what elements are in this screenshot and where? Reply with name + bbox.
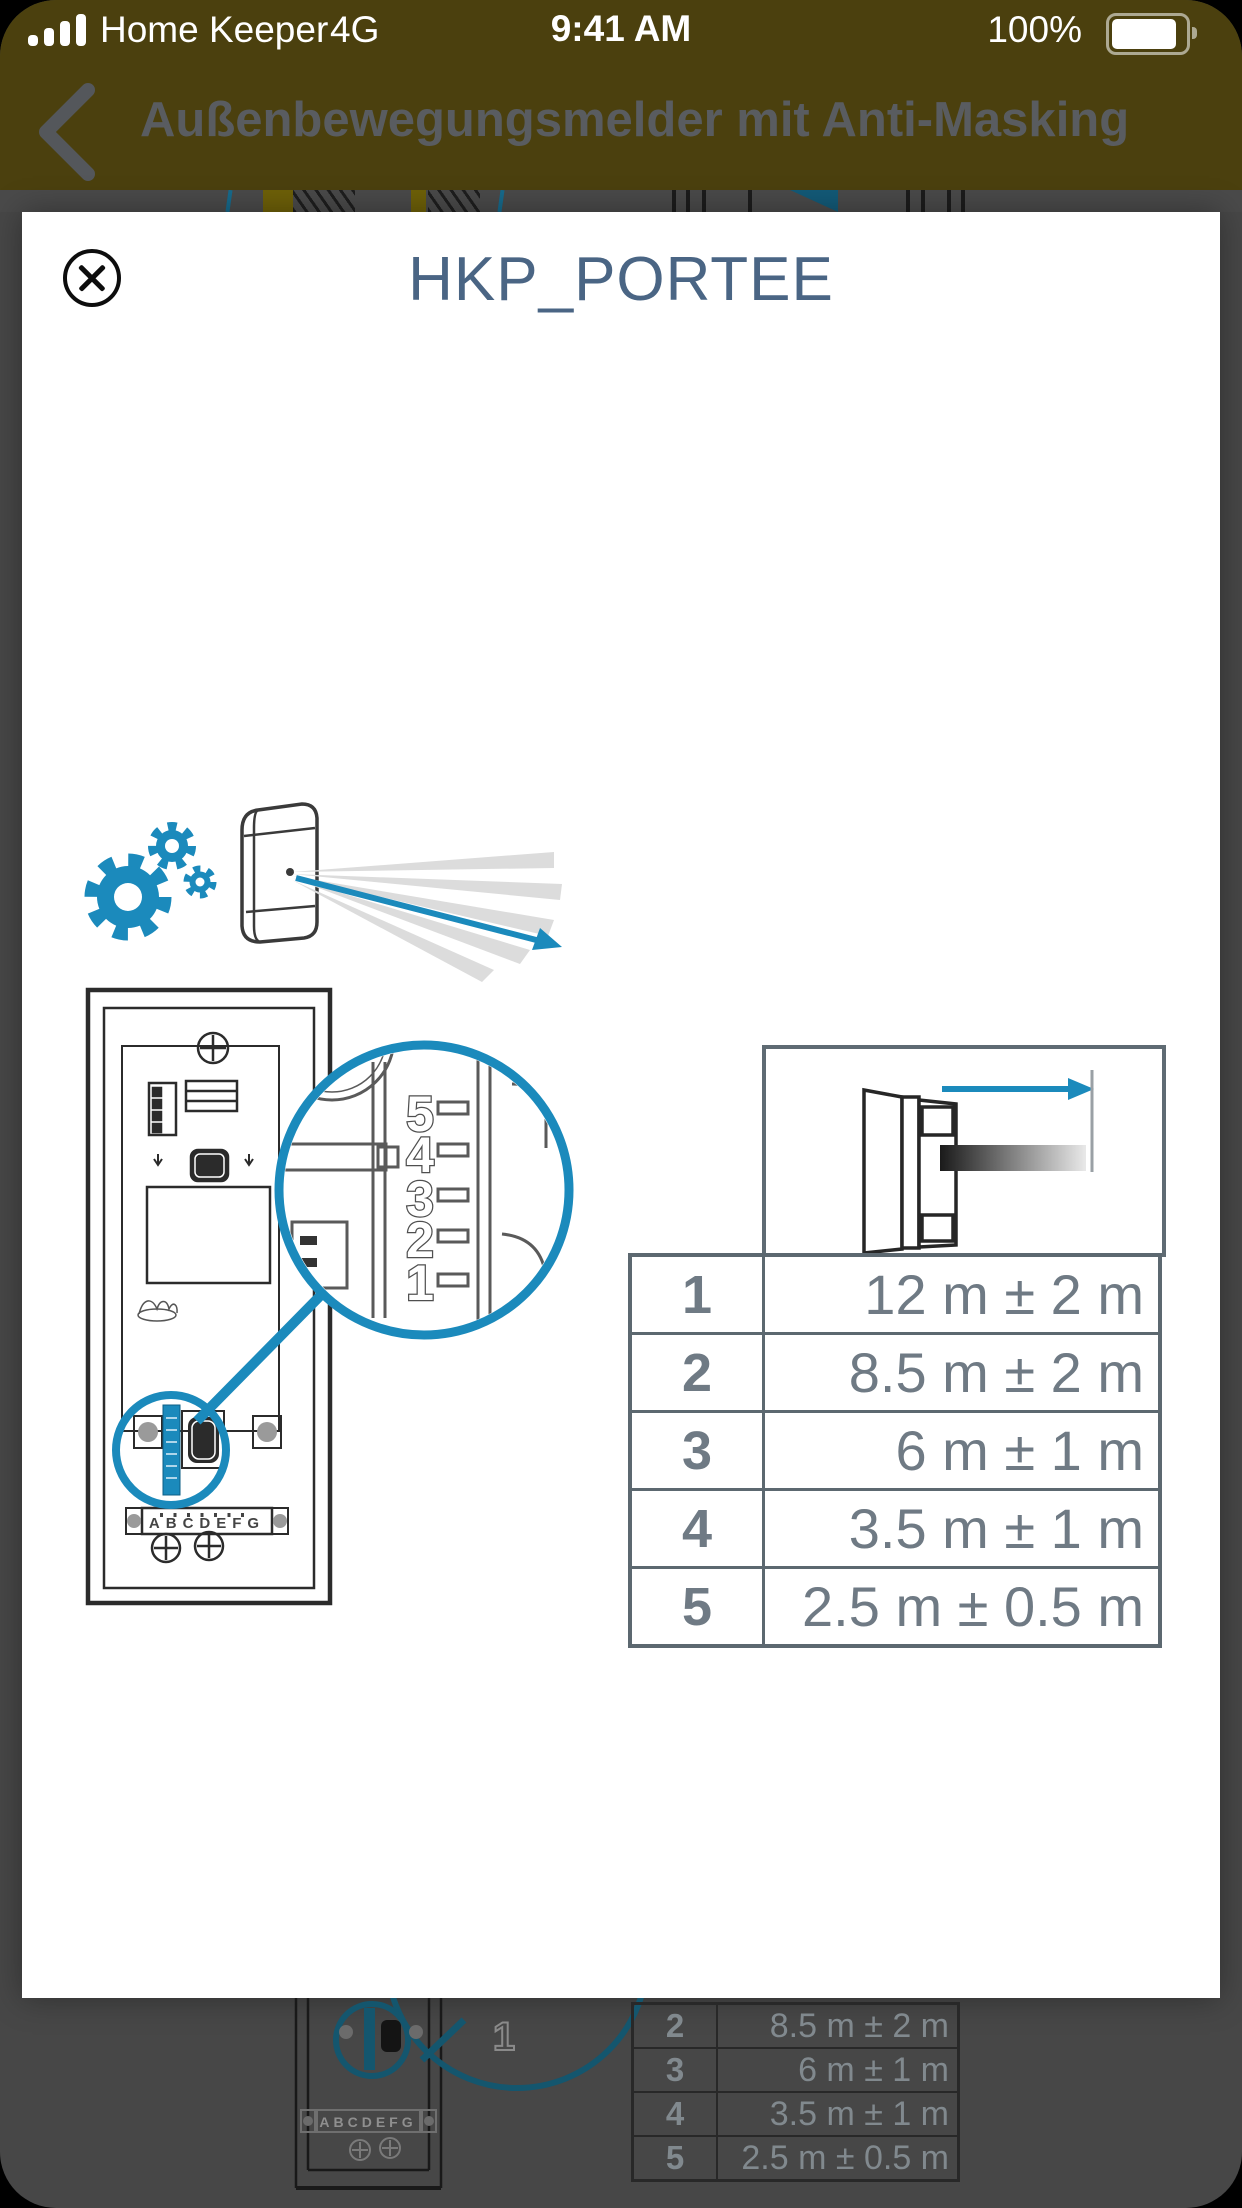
table-row: 4 3.5 m ± 1 m — [634, 2091, 957, 2135]
image-viewer-modal: HKP_PORTEE — [22, 212, 1220, 1998]
table-row: 2 8.5 m ± 2 m — [634, 2005, 957, 2047]
screw-icon — [152, 1534, 180, 1562]
background-fragment — [686, 190, 690, 212]
level-cell: 4 — [634, 2093, 718, 2135]
level-cell: 2 — [634, 2005, 718, 2047]
background-fragment — [921, 190, 925, 212]
background-fragment — [748, 190, 752, 212]
callout-digit: 1 — [406, 1255, 434, 1311]
level-cell: 2 — [632, 1335, 765, 1410]
level-cell: 1 — [632, 1257, 765, 1332]
background-fragment — [961, 190, 965, 212]
screw-icon — [195, 1532, 223, 1560]
background-fragment — [225, 190, 232, 212]
chevron-left-icon[interactable] — [30, 82, 110, 182]
background-fragment — [293, 190, 355, 212]
level-cell: 5 — [634, 2137, 718, 2179]
dimmed-device-diagram-fragment: 1 ABCDEFG — [290, 1998, 660, 2208]
range-cell: 2.5 m ± 0.5 m — [765, 1569, 1158, 1644]
range-cell: 12 m ± 2 m — [765, 1257, 1158, 1332]
range-cell: 3.5 m ± 1 m — [718, 2093, 957, 2135]
level-cell: 3 — [632, 1413, 765, 1488]
gears-icon — [92, 827, 213, 933]
range-cell: 3.5 m ± 1 m — [765, 1491, 1158, 1566]
table-row: 2 8.5 m ± 2 m — [632, 1332, 1158, 1410]
background-fragment — [672, 190, 676, 212]
status-bar: Home Keeper 4G 9:41 AM 100% — [0, 0, 1242, 60]
range-side-view-diagram — [762, 1045, 1166, 1257]
modal-title: HKP_PORTEE — [22, 238, 1220, 322]
background-fragment — [497, 190, 504, 212]
level-cell: 4 — [632, 1491, 765, 1566]
dimmed-magnifier-arc — [387, 1998, 647, 2088]
battery-icon — [1106, 13, 1190, 55]
background-fragment — [702, 190, 706, 212]
range-cell: 6 m ± 1 m — [718, 2049, 957, 2091]
app-header: Home Keeper 4G 9:41 AM 100% Außenbewegun… — [0, 0, 1242, 190]
dimmed-dip-slider — [336, 2004, 423, 2076]
page-title: Außenbewegungsmelder mit Anti-Masking — [140, 92, 1212, 148]
table-row: 3 6 m ± 1 m — [634, 2047, 957, 2091]
dimmed-terminal-labels: ABCDEFG — [319, 2114, 416, 2130]
detector-side-view-icon — [864, 1090, 956, 1253]
dip-slider-icon — [163, 1405, 219, 1495]
background-fragment — [263, 190, 293, 212]
table-row: 5 2.5 m ± 0.5 m — [634, 2135, 957, 2179]
device-internals-diagram: ABCDEFG — [82, 984, 602, 1629]
table-row: 5 2.5 m ± 0.5 m — [632, 1566, 1158, 1644]
settings-gears-and-beams-icon — [62, 800, 592, 990]
background-fragment — [790, 190, 838, 212]
detection-beams-icon — [292, 852, 562, 982]
nav-bar: Außenbewegungsmelder mit Anti-Masking — [0, 60, 1242, 190]
connector-block — [149, 1083, 176, 1135]
callout-link-line — [197, 1291, 325, 1421]
screw-icon — [198, 1033, 228, 1063]
table-row: 3 6 m ± 1 m — [632, 1410, 1158, 1488]
dimmed-background-strip — [0, 190, 1242, 212]
background-fragment — [428, 190, 480, 212]
dimmed-range-table: 2 8.5 m ± 2 m 3 6 m ± 1 m 4 3.5 m ± 1 m … — [631, 2002, 960, 2182]
range-cell: 8.5 m ± 2 m — [718, 2005, 957, 2047]
dimmed-screws — [350, 2138, 400, 2160]
background-fragment — [906, 190, 910, 212]
detection-range-gradient-bar — [940, 1145, 1086, 1171]
level-cell: 5 — [632, 1569, 765, 1644]
range-cell: 6 m ± 1 m — [765, 1413, 1158, 1488]
range-table: 1 12 m ± 2 m 2 8.5 m ± 2 m 3 6 m ± 1 m 4… — [628, 1253, 1162, 1648]
background-fragment — [947, 190, 951, 212]
range-cell: 2.5 m ± 0.5 m — [718, 2137, 957, 2179]
table-row: 1 12 m ± 2 m — [632, 1257, 1158, 1332]
level-cell: 3 — [634, 2049, 718, 2091]
dimmed-callout-digit: 1 — [493, 2015, 515, 2059]
background-fragment — [411, 190, 426, 212]
range-cell: 8.5 m ± 2 m — [765, 1335, 1158, 1410]
battery-percent-label: 100% — [987, 9, 1082, 51]
table-row: 4 3.5 m ± 1 m — [632, 1488, 1158, 1566]
phone-screen: Home Keeper 4G 9:41 AM 100% Außenbewegun… — [0, 0, 1242, 2208]
motion-detector-icon — [242, 804, 317, 942]
terminal-labels: ABCDEFG — [149, 1515, 265, 1532]
